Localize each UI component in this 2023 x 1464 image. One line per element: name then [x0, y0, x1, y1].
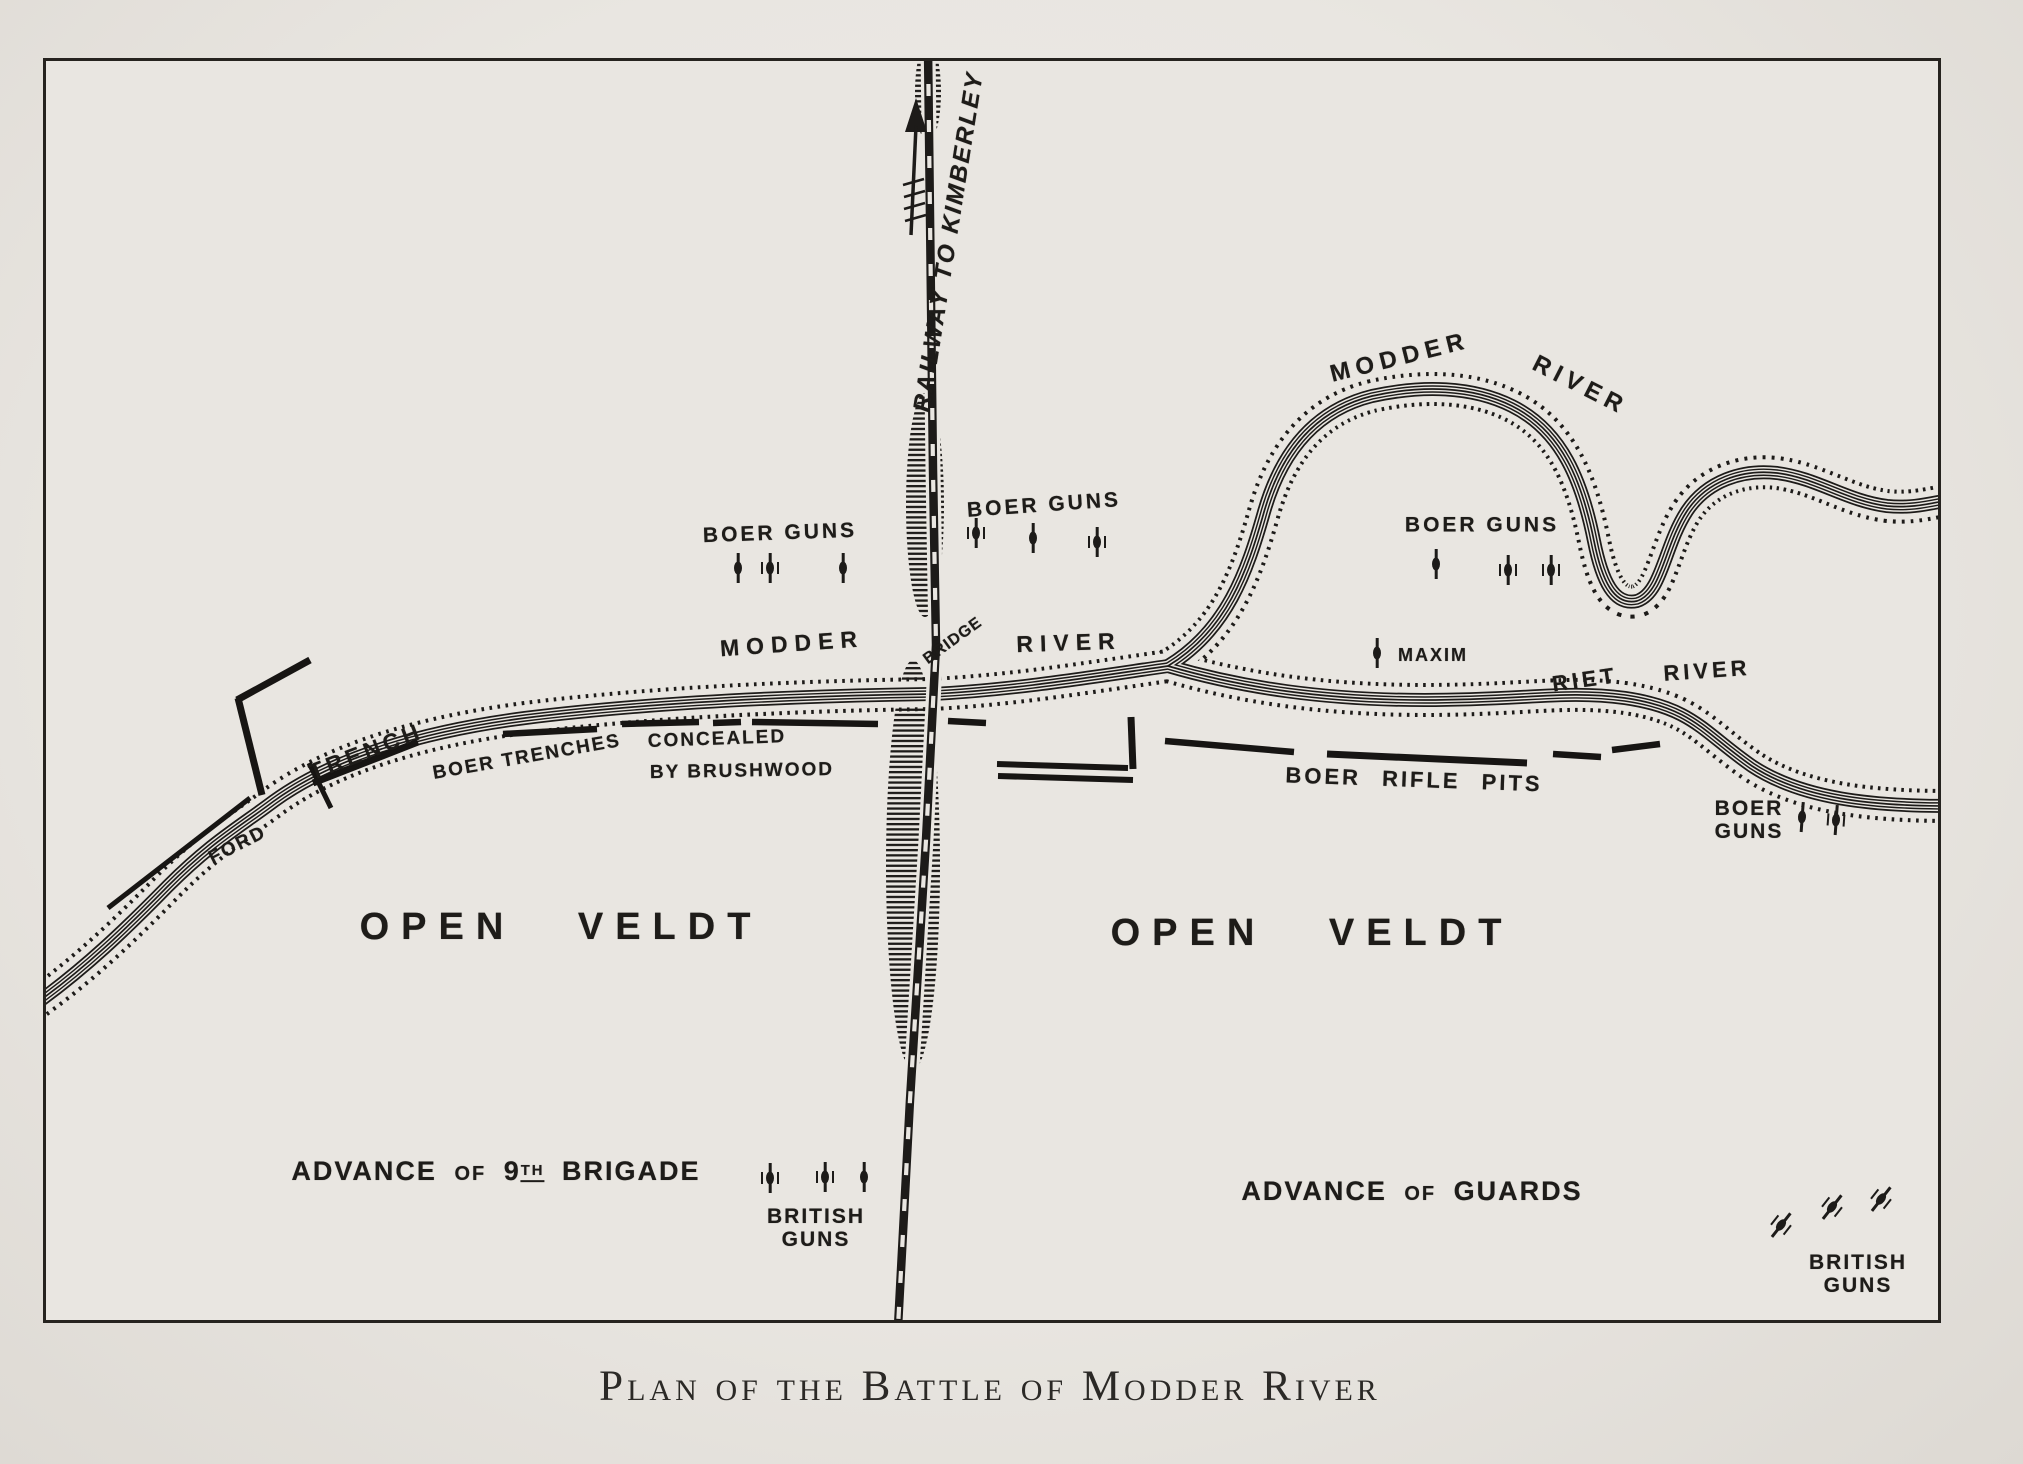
artillery-gun-icon — [1790, 801, 1814, 832]
figure-caption: Plan of the Battle of Modder River — [0, 1362, 1980, 1411]
british-guns-left-line2: GUNS — [767, 1228, 865, 1251]
artillery-gun-icon — [832, 553, 854, 583]
nine-word: 9 — [504, 1156, 521, 1186]
artillery-gun-icon — [759, 1163, 781, 1193]
advance-of-9th-brigade-label: ADVANCE OF 9TH BRIGADE — [291, 1157, 700, 1187]
boer-guns-far-right-line1: BOER — [1715, 797, 1784, 820]
artillery-gun-icon — [727, 553, 749, 583]
artillery-gun-icon — [1425, 549, 1447, 579]
artillery-gun-icon — [1540, 555, 1562, 585]
boer-guns-far-right-label: BOER GUNS — [1715, 797, 1784, 843]
artillery-gun-icon — [814, 1162, 836, 1192]
maxim-label: MAXIM — [1398, 646, 1468, 666]
boer-trenches-label-part3: BY BRUSHWOOD — [650, 760, 834, 784]
artillery-gun-icon — [1366, 638, 1388, 668]
brigade-word: BRIGADE — [562, 1156, 701, 1186]
british-guns-right-label: BRITISH GUNS — [1809, 1251, 1907, 1297]
of-word: OF — [454, 1163, 486, 1185]
british-guns-left-label: BRITISH GUNS — [767, 1205, 865, 1251]
photo-corner-artifact — [0, 0, 34, 30]
boer-guns-far-right-line2: GUNS — [1715, 820, 1784, 843]
british-guns-right-line1: BRITISH — [1809, 1251, 1907, 1274]
entrenchment-angle-east — [997, 717, 1133, 780]
boer-guns-right-label: BOER GUNS — [1405, 513, 1559, 536]
guards-word: GUARDS — [1454, 1176, 1583, 1206]
th-superscript: TH — [521, 1163, 545, 1182]
open-veldt-left-label: OPEN VELDT — [360, 907, 763, 949]
advance-word: ADVANCE — [1241, 1176, 1387, 1206]
modder-bridge-label-word2: RIVER — [1016, 629, 1122, 658]
of-word: OF — [1404, 1183, 1436, 1205]
artillery-gun-icon — [759, 553, 781, 583]
artillery-gun-icon — [1022, 523, 1044, 553]
advance-of-guards-label: ADVANCE OF GUARDS — [1241, 1177, 1582, 1207]
photographed-map-plate: RAILWAY TO KIMBERLEY MODDER RIVER BOER G… — [0, 0, 2023, 1464]
artillery-gun-icon — [1497, 555, 1519, 585]
open-veldt-right-label: OPEN VELDT — [1111, 913, 1514, 955]
advance-word: ADVANCE — [291, 1156, 437, 1186]
artillery-gun-icon — [1086, 527, 1108, 557]
artillery-gun-icon — [853, 1162, 875, 1192]
map-drawing — [0, 0, 2023, 1464]
artillery-gun-icon — [1824, 804, 1848, 835]
british-guns-left-line1: BRITISH — [767, 1205, 865, 1228]
british-guns-right-line2: GUNS — [1809, 1274, 1907, 1297]
artillery-gun-icon — [965, 518, 987, 548]
